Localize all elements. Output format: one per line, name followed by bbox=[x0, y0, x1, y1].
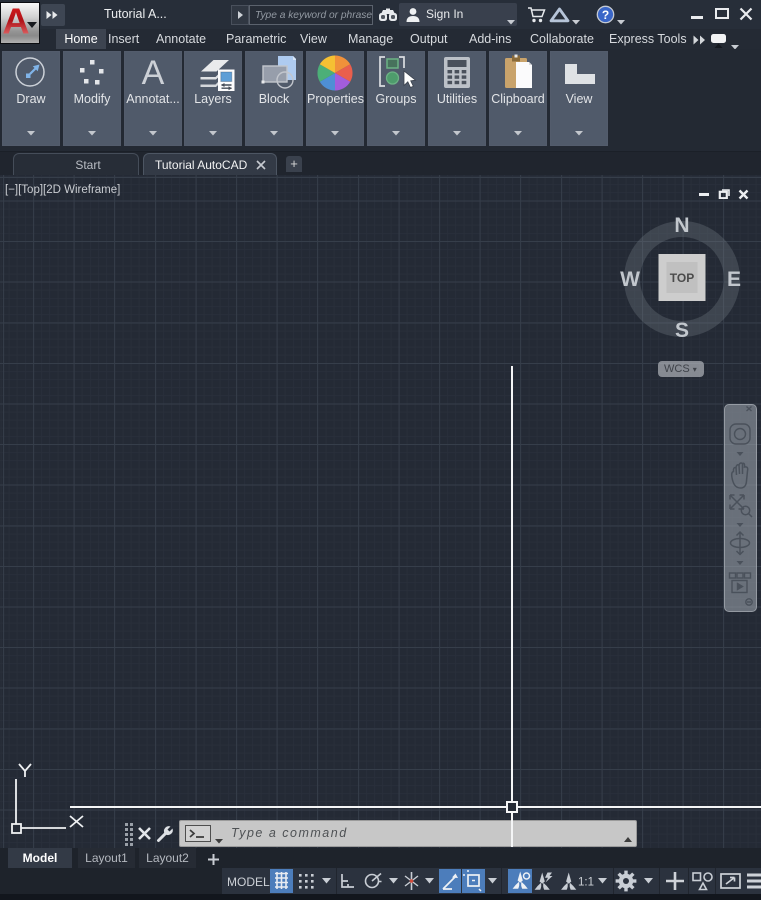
svg-text:E: E bbox=[727, 268, 741, 291]
svg-text:A: A bbox=[142, 55, 165, 91]
svg-text:?: ? bbox=[602, 8, 609, 22]
svg-text:A: A bbox=[2, 2, 29, 41]
svg-text:S: S bbox=[675, 319, 689, 342]
svg-text:N: N bbox=[674, 214, 689, 237]
svg-text:1:1: 1:1 bbox=[578, 877, 594, 889]
svg-text:TOP: TOP bbox=[670, 271, 694, 285]
svg-text:MODEL: MODEL bbox=[227, 875, 270, 889]
svg-text:W: W bbox=[620, 268, 640, 291]
